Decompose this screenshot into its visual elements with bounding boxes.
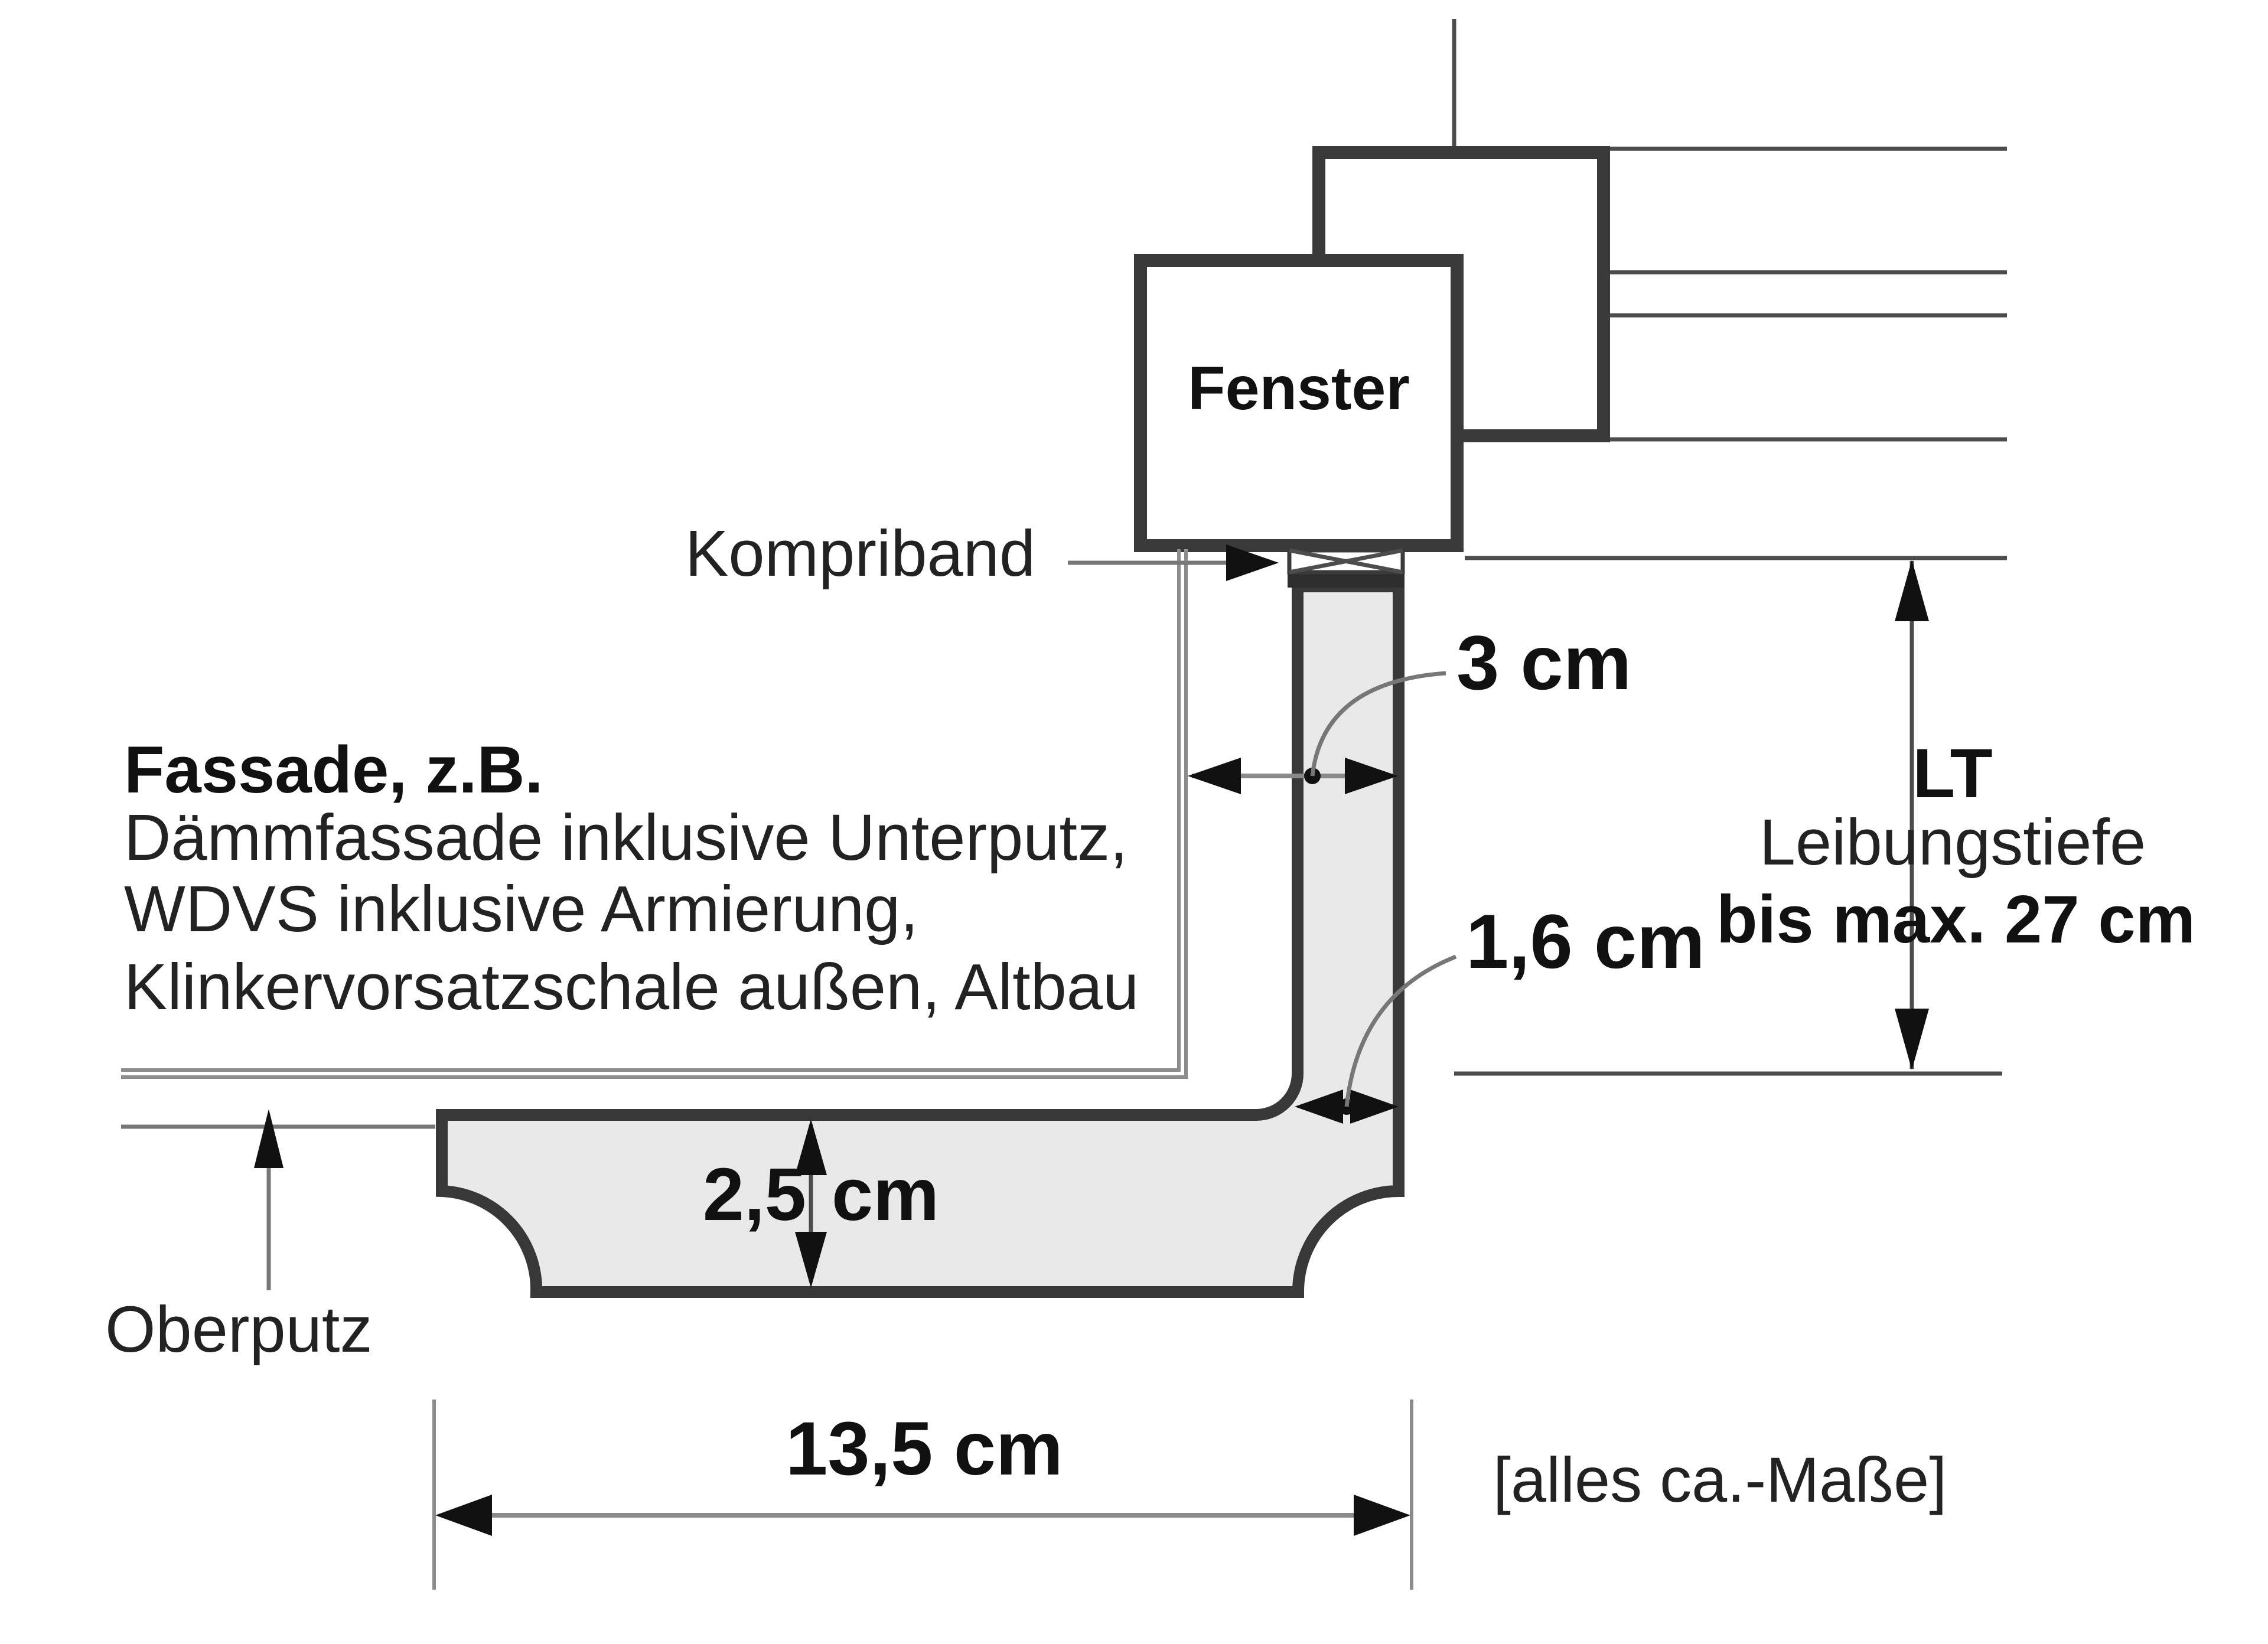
fenster-label: Fenster (1140, 358, 1457, 419)
dim-135-arrow-left (435, 1495, 492, 1536)
fassade-line-2: WDVS inklusive Armierung, (124, 877, 918, 942)
dim-135cm-label: 13,5 cm (688, 1411, 1161, 1487)
dim-lt-arrow-up (1895, 560, 1929, 621)
oberputz-label: Oberputz (105, 1297, 372, 1362)
profile-top-bar (1288, 572, 1405, 588)
fassade-heading: Fassade, z.B. (124, 737, 543, 803)
dim-3cm-label: 3 cm (1456, 624, 1631, 701)
fassade-line-3: Klinkervorsatzschale außen, Altbau (124, 955, 1139, 1020)
note-label: [alles ca.-Maße] (1493, 1448, 1947, 1512)
dim-135-arrow-right (1354, 1495, 1410, 1536)
lt-name-label: Leibungstiefe (1716, 810, 2189, 875)
dim-25-unit-label: cm (832, 1157, 939, 1232)
fassade-line-1: Dämmfassade inklusive Unterputz, (124, 805, 1128, 870)
dim-25-number-label: 2,5 (626, 1157, 806, 1232)
construction-detail-diagram: Fenster Kompriband Fassade, z.B. Dämmfas… (0, 0, 2268, 1644)
lt-abbr-label: LT (1716, 739, 2189, 808)
oberputz-arrowhead (254, 1109, 283, 1168)
lt-max-label: bis max. 27 cm (1716, 886, 2189, 954)
kompriband-label: Kompriband (685, 521, 1035, 586)
dim-lt-arrow-down (1895, 1009, 1929, 1070)
dim-16cm-label: 1,6 cm (1466, 903, 1705, 980)
dim-3cm-arrow-left (1188, 758, 1241, 794)
